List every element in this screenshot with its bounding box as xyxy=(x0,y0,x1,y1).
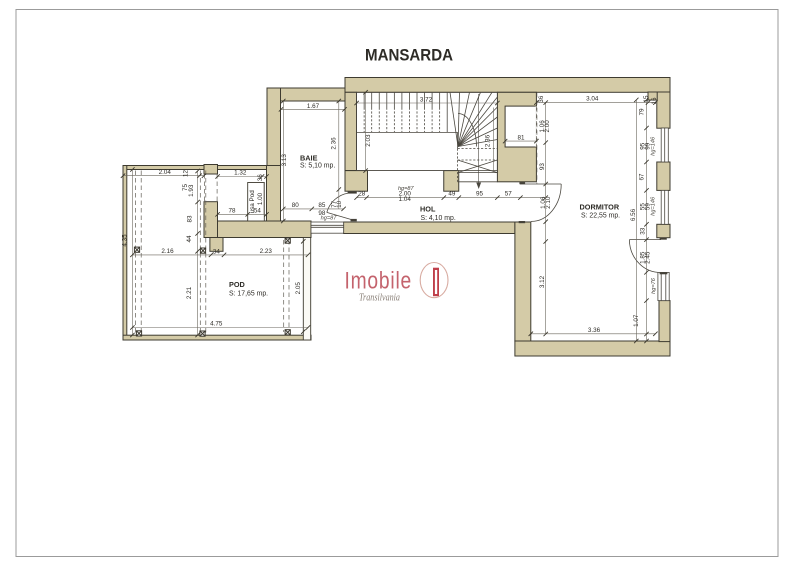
svg-text:BAIE: BAIE xyxy=(300,154,318,163)
svg-text:49: 49 xyxy=(448,190,456,197)
svg-text:44: 44 xyxy=(186,235,193,243)
svg-text:95: 95 xyxy=(476,190,484,197)
svg-text:34: 34 xyxy=(213,248,221,255)
svg-text:2.45: 2.45 xyxy=(645,251,652,264)
svg-text:10: 10 xyxy=(336,200,343,208)
svg-text:81: 81 xyxy=(517,135,525,142)
svg-text:2.23: 2.23 xyxy=(260,248,273,255)
svg-text:2.04: 2.04 xyxy=(159,169,172,176)
svg-text:2.00: 2.00 xyxy=(544,120,551,133)
svg-text:S: 22,55 mp.: S: 22,55 mp. xyxy=(581,212,620,219)
svg-text:79: 79 xyxy=(639,108,646,116)
svg-text:36: 36 xyxy=(538,95,545,103)
svg-text:33: 33 xyxy=(639,227,646,235)
svg-text:3.13: 3.13 xyxy=(281,154,288,167)
svg-text:S: 17,65 mp.: S: 17,65 mp. xyxy=(229,291,268,298)
svg-text:HOL: HOL xyxy=(420,205,436,214)
svg-text:12: 12 xyxy=(183,170,190,178)
svg-text:2.05: 2.05 xyxy=(295,282,302,295)
svg-text:hg=146: hg=146 xyxy=(651,196,657,216)
svg-text:54: 54 xyxy=(254,208,262,215)
svg-text:hg=146: hg=146 xyxy=(651,136,657,156)
svg-text:1.67: 1.67 xyxy=(307,103,320,110)
svg-text:6.56: 6.56 xyxy=(630,208,637,221)
svg-text:hg=76: hg=76 xyxy=(651,277,657,294)
svg-text:15: 15 xyxy=(643,95,650,103)
svg-text:1.32: 1.32 xyxy=(234,170,247,177)
svg-text:3.04: 3.04 xyxy=(586,96,599,103)
svg-text:78: 78 xyxy=(228,208,236,215)
svg-text:3.72: 3.72 xyxy=(420,96,433,103)
svg-text:MANSARDA: MANSARDA xyxy=(365,46,453,65)
svg-text:3.36: 3.36 xyxy=(588,327,601,334)
svg-text:S: 5,10 mp.: S: 5,10 mp. xyxy=(300,162,335,169)
svg-text:1.07: 1.07 xyxy=(633,314,640,327)
svg-text:67: 67 xyxy=(639,173,646,181)
svg-text:4.75: 4.75 xyxy=(210,320,223,327)
svg-text:80: 80 xyxy=(292,202,300,209)
svg-text:36: 36 xyxy=(257,174,264,182)
svg-text:2.03: 2.03 xyxy=(365,134,372,147)
svg-text:2.16: 2.16 xyxy=(161,248,174,255)
svg-text:DORMITOR: DORMITOR xyxy=(580,203,620,212)
svg-text:16: 16 xyxy=(651,97,658,105)
svg-text:28: 28 xyxy=(358,190,366,197)
svg-text:Transilvania: Transilvania xyxy=(359,293,400,304)
svg-text:2.36: 2.36 xyxy=(331,137,338,150)
svg-text:POD: POD xyxy=(229,280,245,289)
svg-text:93: 93 xyxy=(539,163,546,171)
svg-text:1.04: 1.04 xyxy=(399,196,412,203)
svg-text:Imobile: Imobile xyxy=(345,268,413,295)
svg-text:85: 85 xyxy=(318,202,326,209)
svg-text:1.93: 1.93 xyxy=(188,184,195,197)
svg-text:3.12: 3.12 xyxy=(539,275,546,288)
svg-text:4.35: 4.35 xyxy=(121,234,128,247)
svg-text:1.00: 1.00 xyxy=(257,192,264,205)
svg-text:hg=87: hg=87 xyxy=(321,216,338,222)
svg-text:57: 57 xyxy=(505,190,513,197)
svg-text:2.21: 2.21 xyxy=(186,286,193,299)
svg-text:S: 4,10 mp.: S: 4,10 mp. xyxy=(421,215,456,222)
svg-text:83: 83 xyxy=(187,215,194,223)
svg-text:2.36: 2.36 xyxy=(485,134,492,147)
